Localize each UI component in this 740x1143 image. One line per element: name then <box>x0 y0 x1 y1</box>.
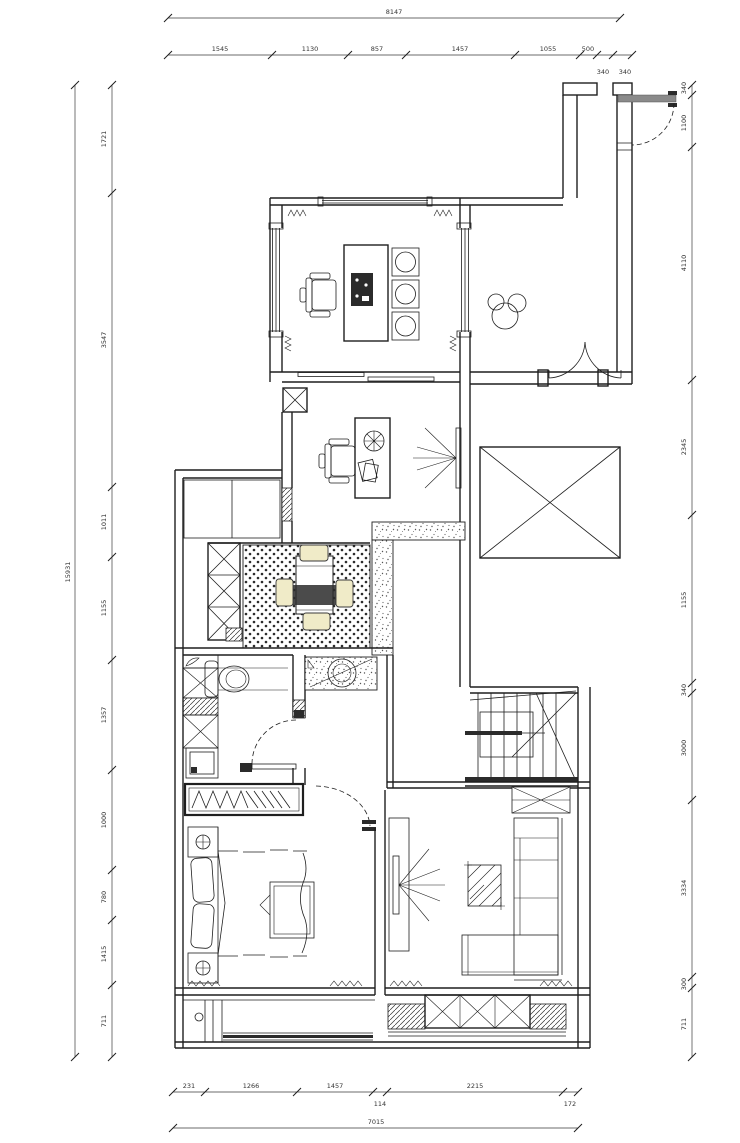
entry <box>563 83 677 384</box>
entry-door-icon <box>618 91 677 145</box>
wall-break <box>617 143 632 150</box>
entry-hall <box>470 294 632 386</box>
dimension-top: 8147 1545 1130 857 1457 1055 500 340 340 <box>164 8 636 76</box>
dim-label: 8147 <box>386 8 403 16</box>
dim-label: 172 <box>564 1100 576 1108</box>
left-counter <box>175 470 282 538</box>
kitchen-island <box>344 245 388 341</box>
staircase <box>465 687 578 786</box>
zigzag-mark <box>450 336 456 351</box>
dim-label: 4110 <box>680 255 688 272</box>
balcony-cabinet-strip <box>388 995 566 1036</box>
dim-label: 3000 <box>680 740 688 757</box>
dining-room <box>208 543 370 648</box>
dimension-right: 340 1100 4110 2345 1155 340 3000 3334 30… <box>680 81 696 1061</box>
dim-label: 3547 <box>100 332 108 349</box>
living-room <box>385 782 590 1036</box>
dim-label: 231 <box>183 1082 195 1090</box>
dim-label: 340 <box>597 68 609 76</box>
bath-door-icon <box>240 720 296 772</box>
dim-label: 1055 <box>540 45 557 53</box>
dining-table-icon <box>291 556 339 614</box>
parapet-pier <box>613 83 632 95</box>
dimension-bottom: 231 1266 1457 2215 114 172 7015 <box>169 1082 582 1132</box>
concrete-walls <box>372 522 465 655</box>
desk-icon <box>355 418 390 498</box>
dining-chair-icon <box>336 580 353 607</box>
dim-label: 2345 <box>680 439 688 456</box>
zigzag-mark <box>434 210 452 216</box>
window-right <box>457 223 471 337</box>
nightstand-lamp-icon <box>188 953 218 983</box>
dim-label: 857 <box>371 45 383 53</box>
pillow-icon <box>190 857 214 902</box>
potted-plant-icon <box>364 431 384 451</box>
dim-label: 1545 <box>212 45 229 53</box>
dim-label: 780 <box>100 891 108 903</box>
nightstand-lamp-icon <box>188 827 218 857</box>
dining-chair-icon <box>276 579 293 606</box>
tall-cabinet-icon <box>208 543 240 640</box>
hatch-block <box>226 628 242 641</box>
dim-label: 340 <box>680 684 688 696</box>
wall-tv-icon <box>413 428 461 488</box>
dimension-left: 15931 1721 3547 1011 1155 1357 1000 780 … <box>64 81 116 1061</box>
quilt-icon <box>260 882 314 938</box>
zigzag-mark <box>330 981 362 986</box>
dim-label: 300 <box>680 978 688 990</box>
dim-label: 15931 <box>64 562 72 583</box>
office-chair-icon <box>300 273 336 317</box>
dim-label: 1266 <box>243 1082 260 1090</box>
stair-break-lines <box>470 691 576 781</box>
vanity <box>305 657 377 690</box>
papers-icon <box>358 459 378 482</box>
dim-label: 1011 <box>100 514 108 531</box>
floor-plan-canvas: 8147 1545 1130 857 1457 1055 500 340 340… <box>0 0 740 1143</box>
zigzag-mark <box>188 981 220 986</box>
bedroom <box>175 784 385 1042</box>
tv-panel-icon <box>389 818 445 951</box>
dim-label: 1000 <box>100 812 108 829</box>
dim-label: 1155 <box>100 600 108 617</box>
bedroom-door-icon <box>316 786 376 831</box>
plant-table-icon <box>488 294 526 329</box>
storage-cabinet-icon <box>512 787 570 813</box>
dining-chair-icon <box>303 613 330 630</box>
drain-icon <box>195 1013 203 1021</box>
zigzag-mark <box>285 336 291 351</box>
parapet-pier <box>563 83 597 95</box>
column-icon <box>283 388 307 412</box>
dim-label: 340 <box>680 82 688 94</box>
zigzag-mark <box>540 981 572 986</box>
stool-burner-icons <box>392 248 419 340</box>
study-room <box>282 388 461 543</box>
stair-rail <box>465 731 522 735</box>
dim-label: 1155 <box>680 592 688 609</box>
dim-label: 7015 <box>368 1118 385 1126</box>
dining-chair-icon <box>300 545 328 561</box>
pillow-icon <box>190 903 214 948</box>
dim-label: 711 <box>100 1015 108 1027</box>
double-bed-icon <box>190 827 314 983</box>
zigzag-mark <box>288 210 306 216</box>
dim-label: 2215 <box>467 1082 484 1090</box>
balcony-sill <box>223 1035 373 1038</box>
coffee-table-icon <box>464 861 505 910</box>
zigzag-mark <box>390 981 422 986</box>
dim-label: 711 <box>680 1018 688 1030</box>
hall <box>387 655 393 788</box>
bath-cabinets <box>183 655 218 778</box>
dim-label: 1457 <box>327 1082 344 1090</box>
office-chair-icon <box>319 439 355 483</box>
door-post <box>294 710 304 718</box>
dim-label: 1721 <box>100 131 108 148</box>
dim-label: 3334 <box>680 880 688 897</box>
dim-label: 500 <box>582 45 594 53</box>
dim-label: 1100 <box>680 115 688 132</box>
sliding-door-icon <box>298 373 434 382</box>
washing-machine-icon <box>186 748 218 778</box>
dim-label: 1357 <box>100 707 108 724</box>
toilet-icon <box>205 661 288 697</box>
dim-label: 1457 <box>452 45 469 53</box>
wall-section <box>282 488 292 521</box>
dim-label: 1130 <box>302 45 319 53</box>
void-cross <box>480 447 620 558</box>
bedroom-balcony <box>183 1000 375 1042</box>
dim-label: 1415 <box>100 946 108 963</box>
floor-plan-drawing: 8147 1545 1130 857 1457 1055 500 340 340… <box>0 0 740 1143</box>
window-left <box>269 223 283 337</box>
sofa-l-shaped-icon <box>462 818 562 980</box>
dim-label: 340 <box>619 68 631 76</box>
wardrobe-icon <box>185 784 303 815</box>
dim-label: 114 <box>374 1100 386 1108</box>
stair-treads <box>478 693 556 778</box>
